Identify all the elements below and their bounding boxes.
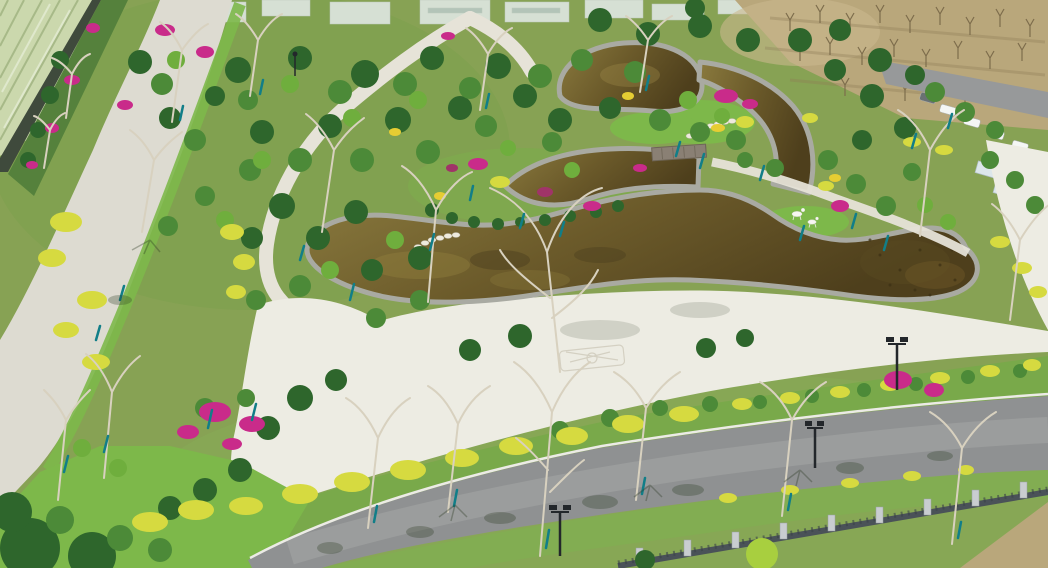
aerial-photo-canvas	[0, 0, 1048, 568]
